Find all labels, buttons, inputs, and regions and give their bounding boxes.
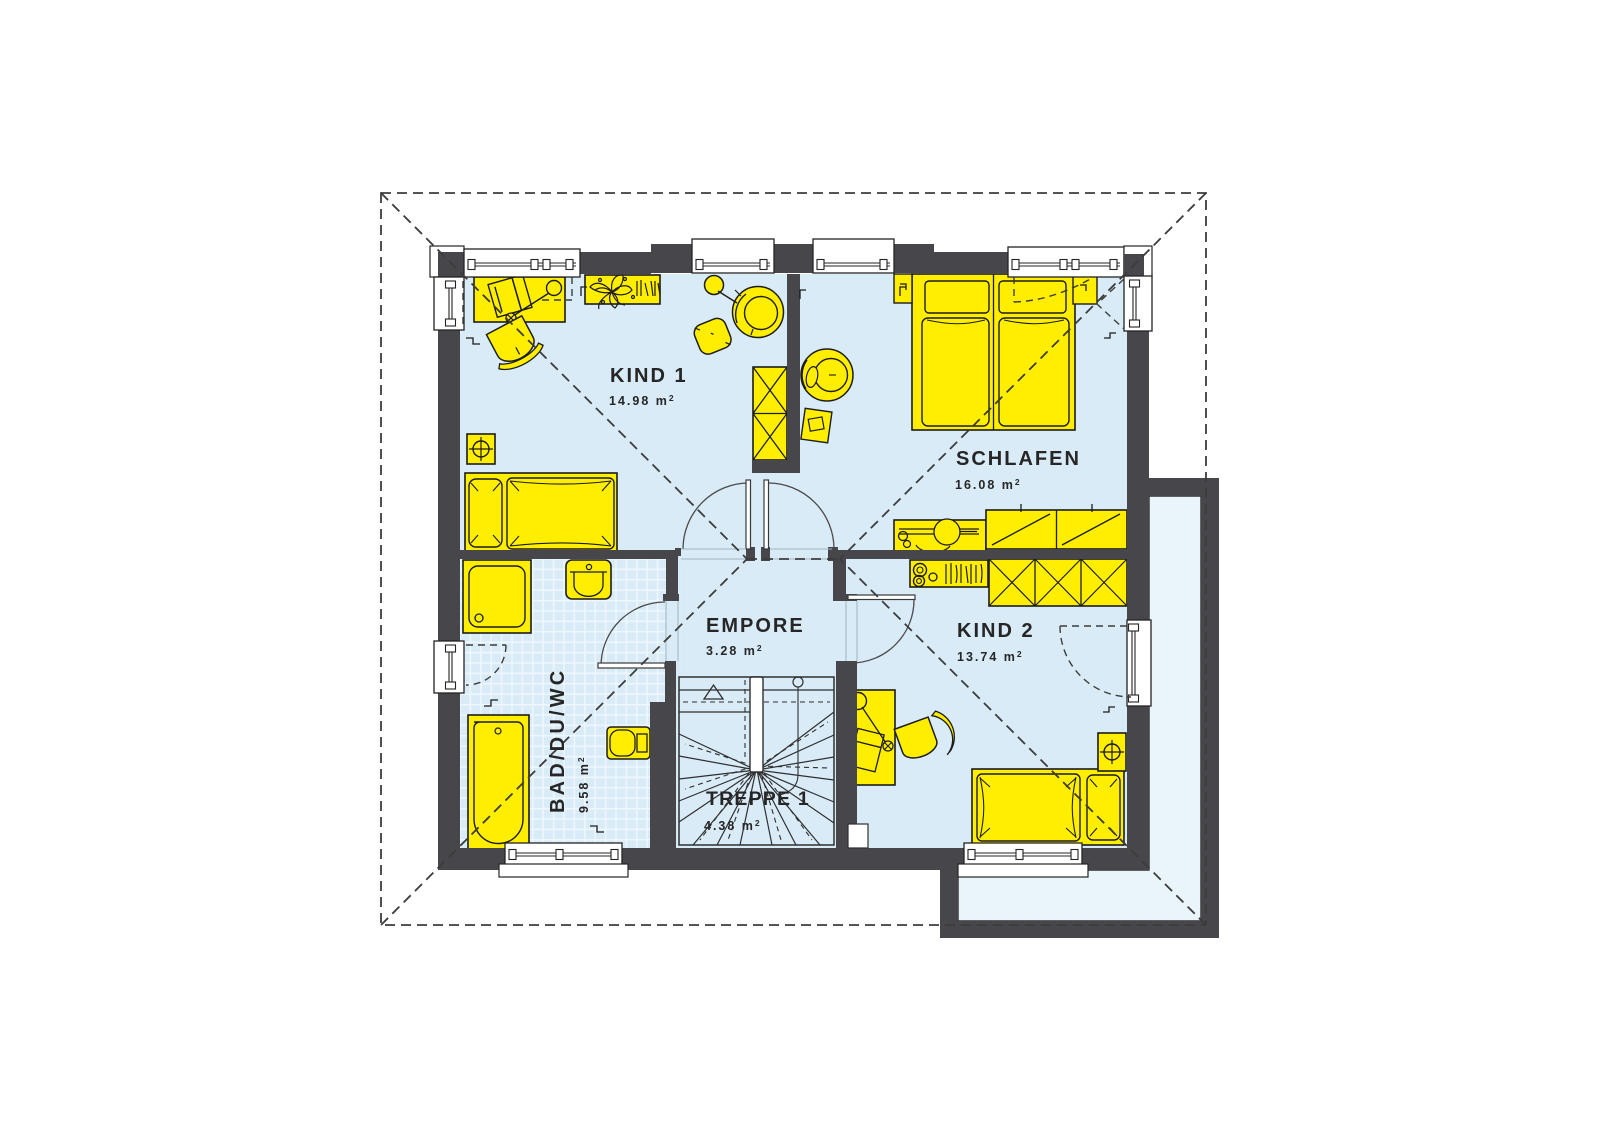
svg-text:KIND 2: KIND 2 xyxy=(957,620,1035,642)
svg-text:SCHLAFEN: SCHLAFEN xyxy=(956,448,1081,470)
svg-text:9.58 m2: 9.58 m2 xyxy=(576,755,591,813)
svg-text:16.08 m2: 16.08 m2 xyxy=(955,477,1022,492)
svg-text:EMPORE: EMPORE xyxy=(706,615,805,637)
svg-text:4.38 m2: 4.38 m2 xyxy=(704,818,762,833)
svg-text:14.98 m2: 14.98 m2 xyxy=(609,393,676,408)
svg-text:13.74 m2: 13.74 m2 xyxy=(957,649,1024,664)
svg-text:3.28 m2: 3.28 m2 xyxy=(706,643,764,658)
svg-text:TREPPE 1: TREPPE 1 xyxy=(706,788,810,810)
svg-text:BAD/DU/WC: BAD/DU/WC xyxy=(547,668,569,813)
svg-text:KIND 1: KIND 1 xyxy=(610,365,688,387)
